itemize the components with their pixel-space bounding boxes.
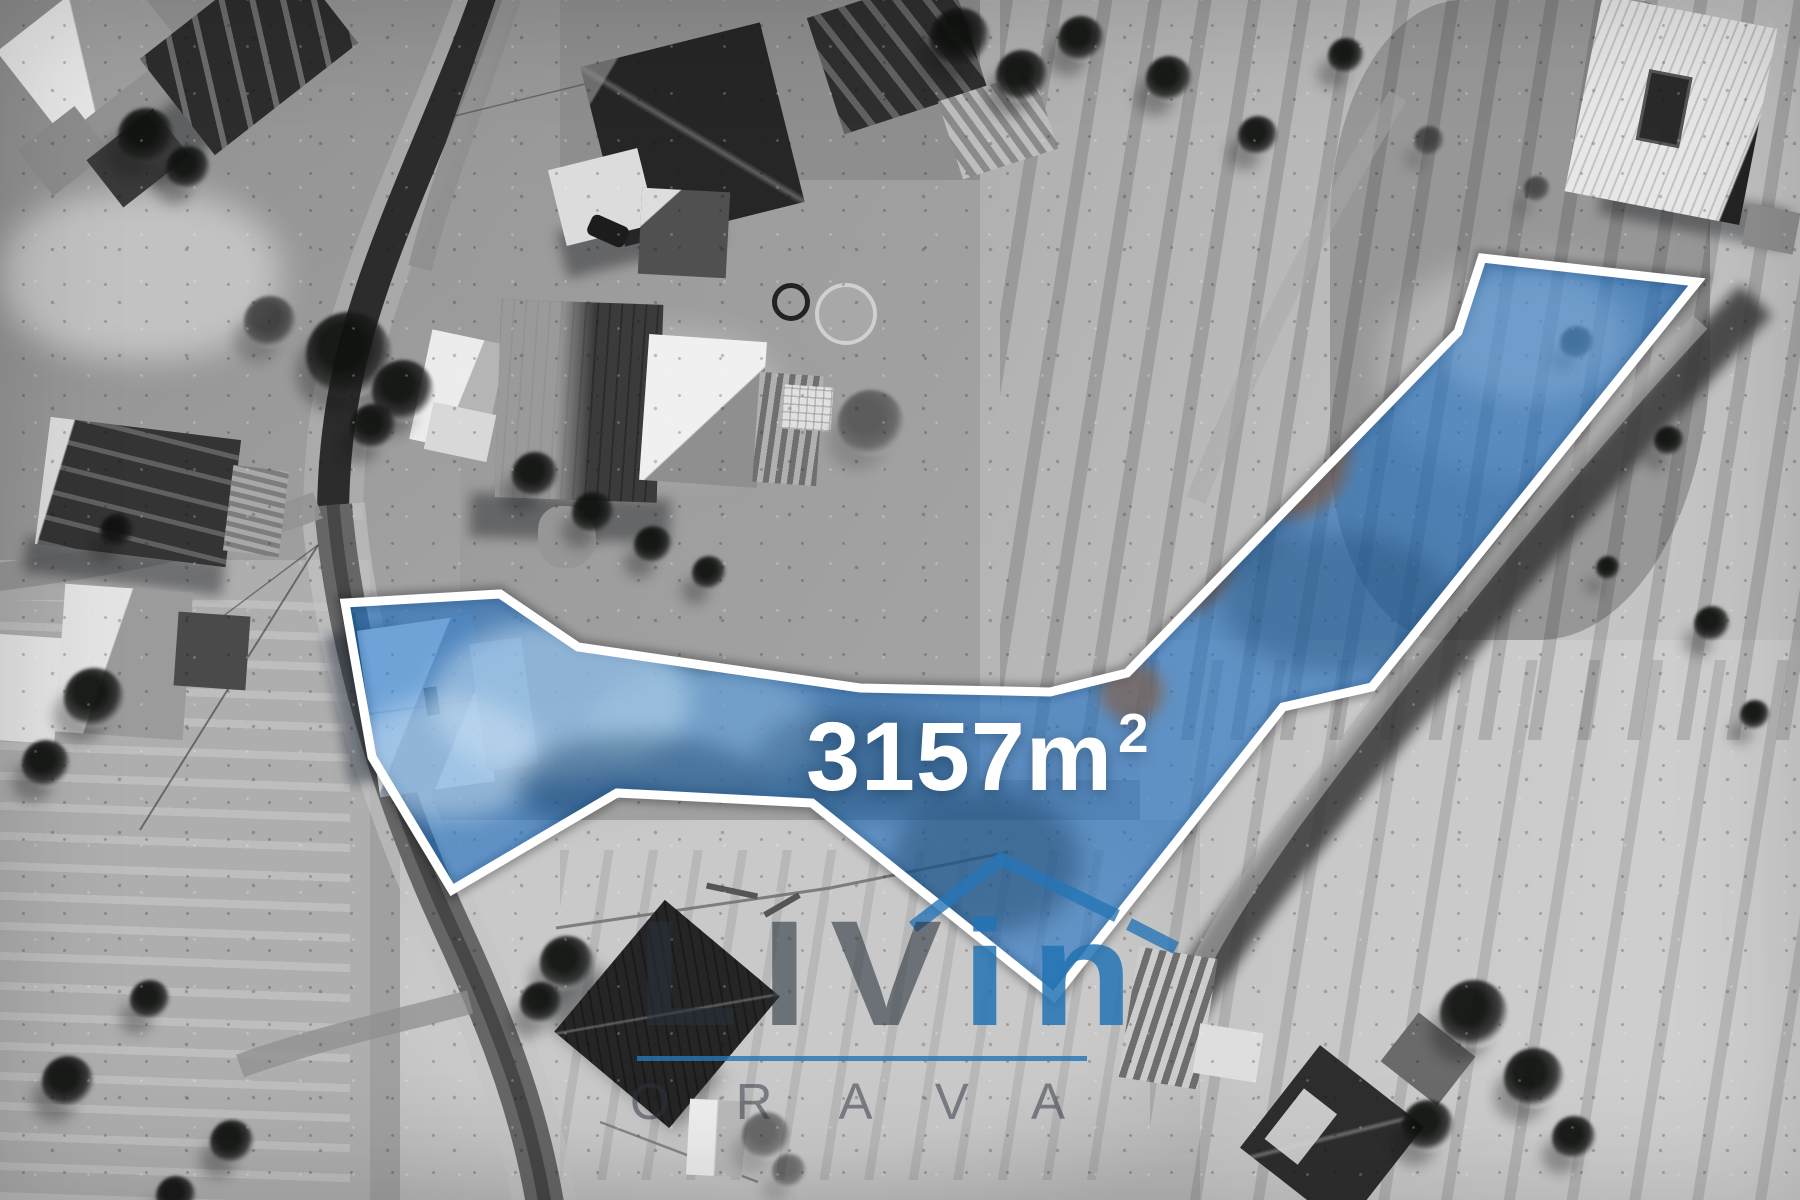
brand-text-liv: LIV <box>636 889 962 1057</box>
watermark-subbrand: ORAVA <box>630 1076 1131 1127</box>
watermark-brand: LIVin <box>636 898 1156 1048</box>
watermark-divider <box>637 1056 1087 1061</box>
brand-text-in: in <box>962 889 1156 1057</box>
aerial-photo-stage: 3157m2 LIVin ORAVA <box>0 0 1800 1200</box>
